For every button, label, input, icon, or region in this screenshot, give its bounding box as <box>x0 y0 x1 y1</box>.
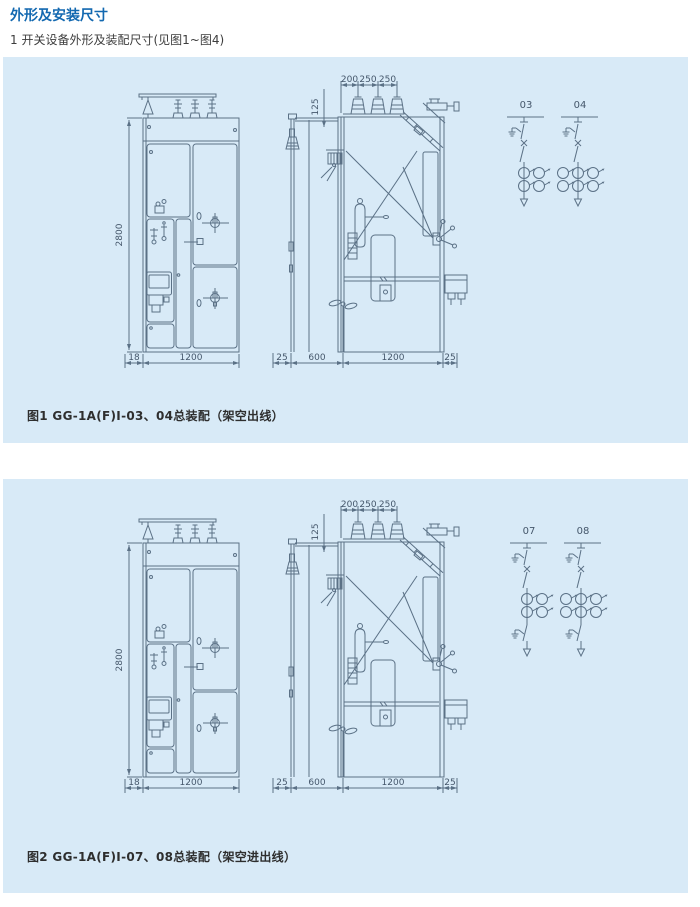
scheme-07: 07 <box>510 526 554 656</box>
figure1-panel: 0304 图1 GG-1A(F)I-03、04总装配（架空出线） <box>3 57 688 443</box>
page-title: 外形及安装尺寸 <box>10 5 108 25</box>
figure1-caption: 图1 GG-1A(F)I-03、04总装配（架空出线） <box>27 407 284 424</box>
scheme-label: 08 <box>577 526 590 537</box>
page-subtitle: 1 开关设备外形及装配尺寸(见图1~图4) <box>10 31 224 48</box>
figure2-panel: 0708 图2 GG-1A(F)I-07、08总装配（架空进出线） <box>3 479 688 893</box>
scheme-03: 03 <box>507 100 551 206</box>
figure1-drawing: 0304 <box>3 57 688 443</box>
figure2-drawing: 0708 <box>3 479 688 893</box>
figure2-scheme-diagrams: 0708 <box>510 526 608 656</box>
scheme-04: 04 <box>558 100 605 206</box>
scheme-label: 03 <box>520 100 533 111</box>
scheme-08: 08 <box>561 526 608 656</box>
scheme-label: 07 <box>523 526 536 537</box>
scheme-label: 04 <box>574 100 587 111</box>
figure2-caption: 图2 GG-1A(F)I-07、08总装配（架空进出线） <box>27 848 296 865</box>
figure1-scheme-diagrams: 0304 <box>507 100 605 206</box>
